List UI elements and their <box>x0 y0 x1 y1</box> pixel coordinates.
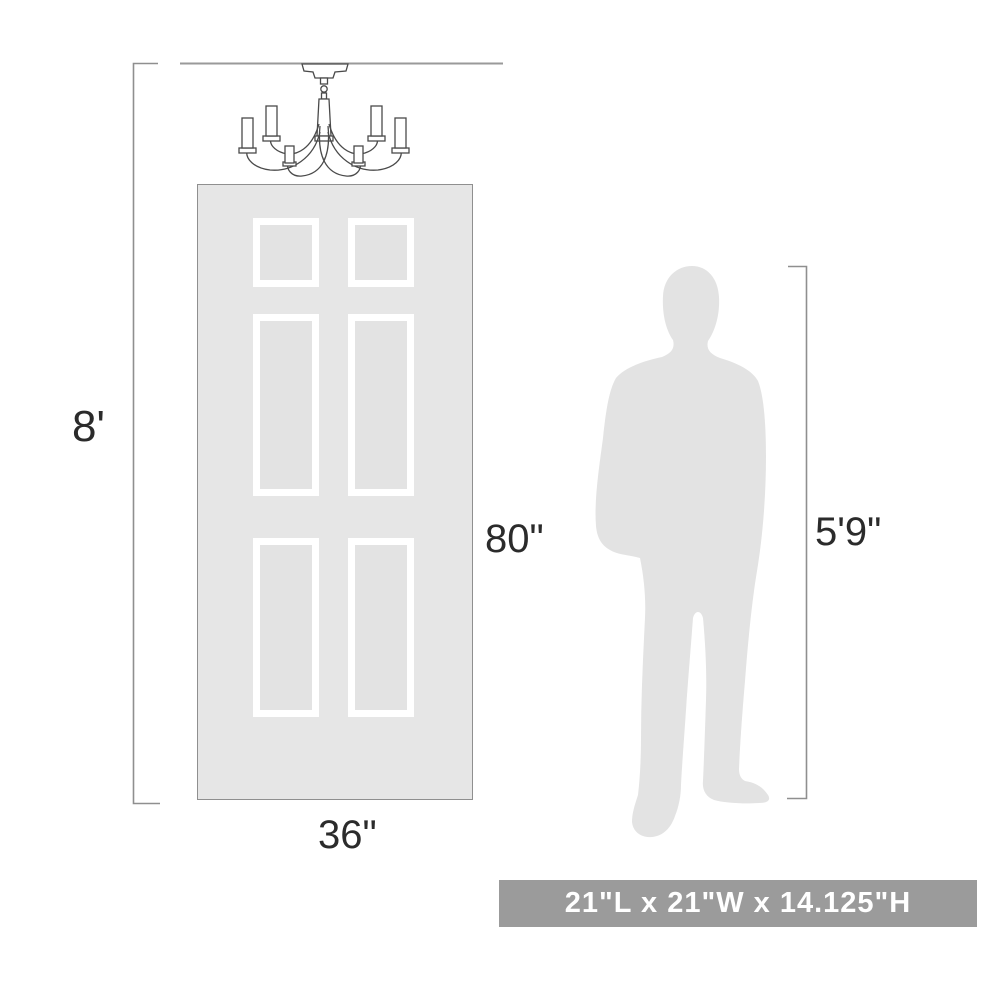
room-height-label: 8' <box>72 404 105 450</box>
chandelier-chain-ball <box>321 86 327 92</box>
person-silhouette <box>596 266 770 837</box>
chandelier-icon <box>239 64 409 176</box>
chandelier-chain <box>321 78 328 84</box>
person-height-dimension-line <box>787 267 807 799</box>
product-dimensions-badge: 21"L x 21"W x 14.125"H <box>499 880 977 927</box>
chandelier-canopy <box>302 64 348 78</box>
door-width-label: 36" <box>318 814 377 856</box>
scale-diagram: 8' 80" 36" 5'9" 21"L x 21"W x 14.125"H <box>0 0 1000 1000</box>
diagram-graphics <box>0 0 1000 1000</box>
room-height-dimension-line <box>134 64 161 804</box>
chandelier-chain <box>322 93 327 99</box>
person-height-label: 5'9" <box>815 511 881 553</box>
door-height-label: 80" <box>485 518 544 560</box>
